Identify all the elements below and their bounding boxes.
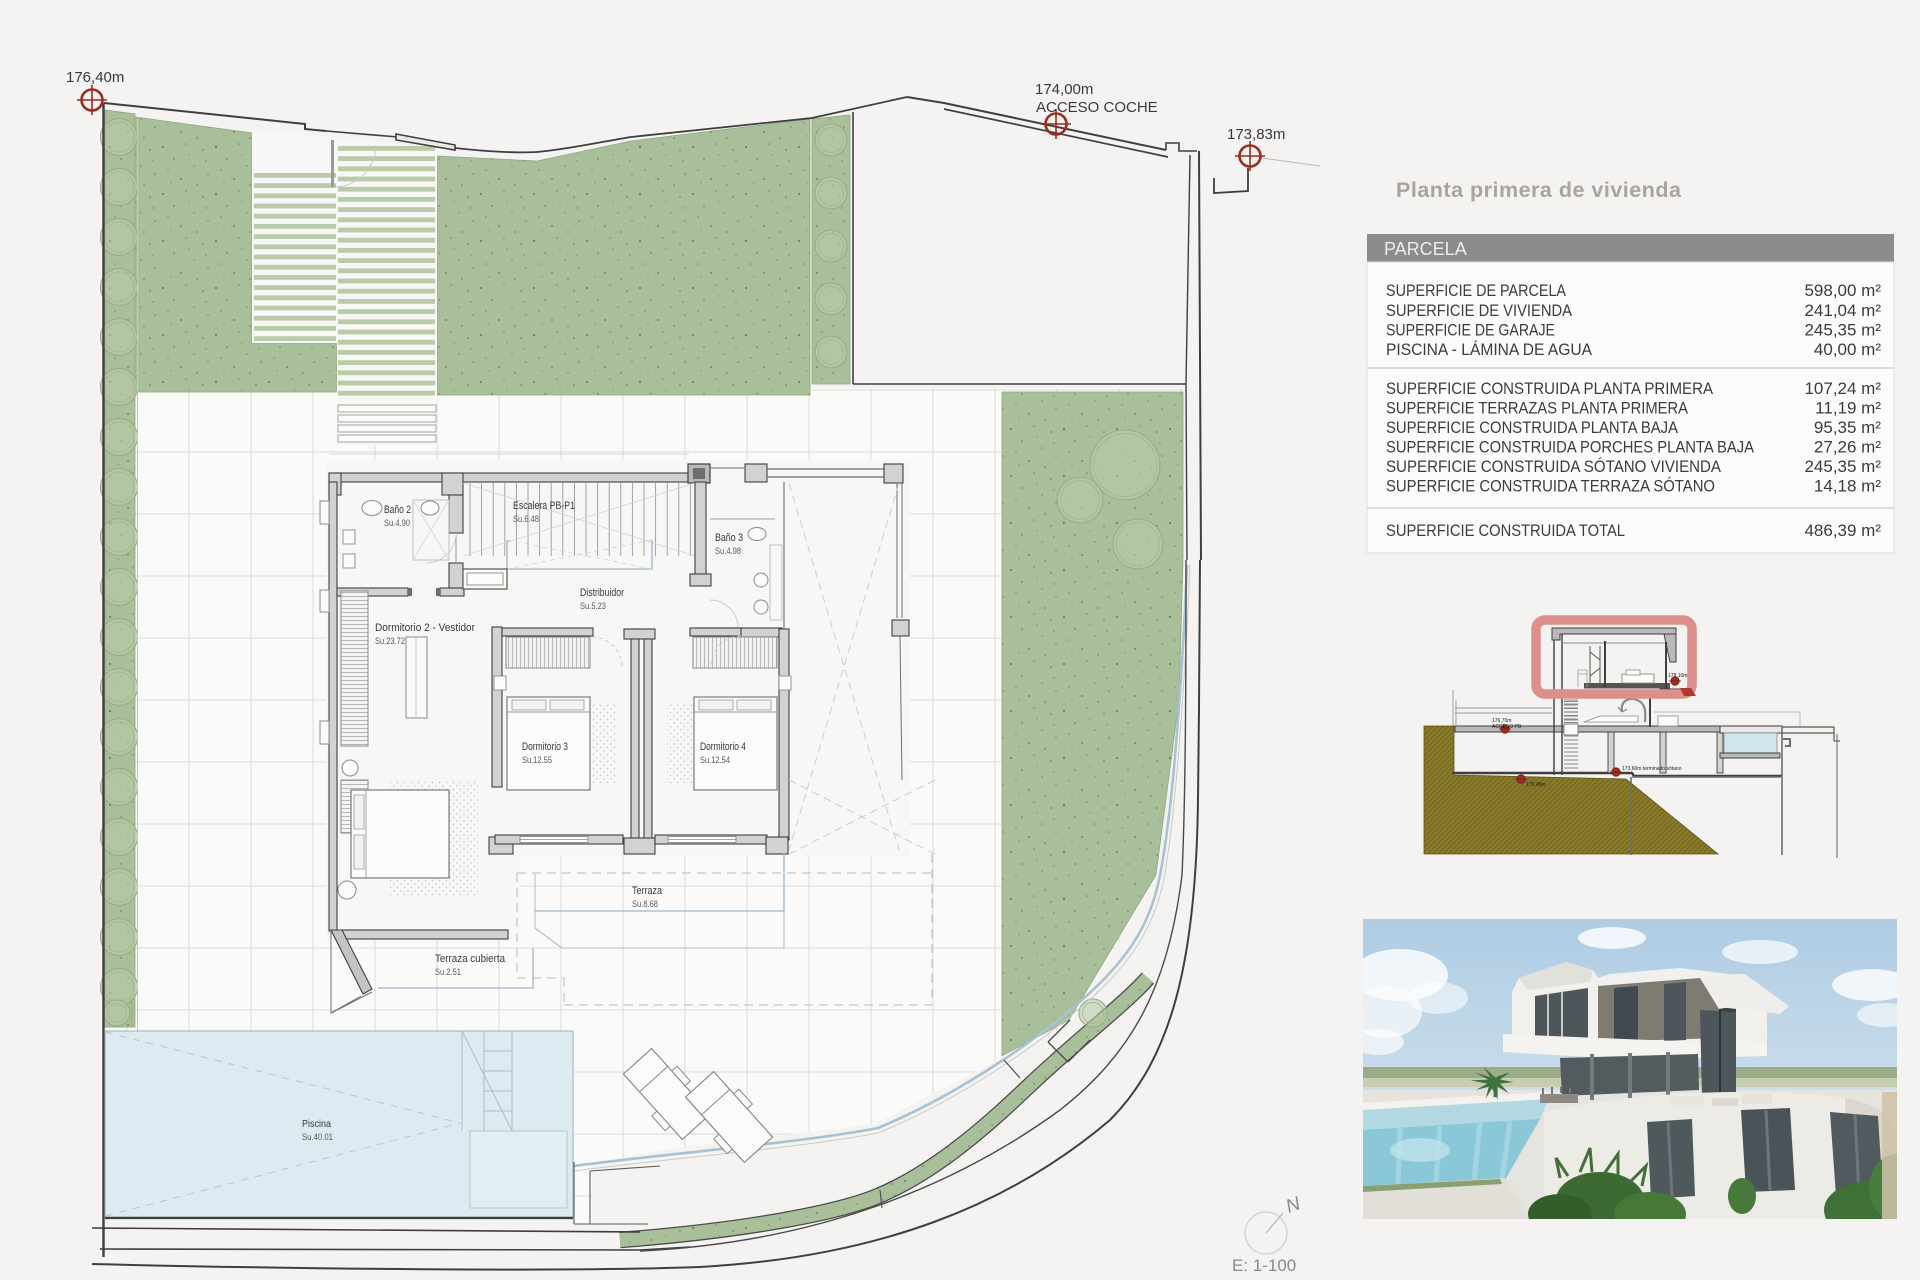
svg-text:Piscina: Piscina	[302, 1118, 331, 1130]
svg-text:Baño 2: Baño 2	[384, 504, 411, 516]
svg-text:Su.5.23: Su.5.23	[580, 601, 606, 612]
svg-text:Planta primera de vivienda: Planta primera de vivienda	[1396, 178, 1682, 202]
svg-text:SUPERFICIE CONSTRUIDA SÓTANO V: SUPERFICIE CONSTRUIDA SÓTANO VIVIENDA	[1386, 457, 1722, 476]
svg-text:Su.2.51: Su.2.51	[435, 967, 461, 978]
svg-text:Su.4.90: Su.4.90	[384, 518, 410, 529]
svg-text:14,18 m²: 14,18 m²	[1814, 477, 1881, 496]
svg-text:PISCINA - LÁMINA DE AGUA: PISCINA - LÁMINA DE AGUA	[1386, 340, 1593, 359]
svg-text:SUPERFICIE CONSTRUIDA TOTAL: SUPERFICIE CONSTRUIDA TOTAL	[1386, 521, 1625, 540]
svg-text:SUPERFICIE CONSTRUIDA TERRAZA: SUPERFICIE CONSTRUIDA TERRAZA SÓTANO	[1386, 477, 1715, 496]
svg-text:Terraza cubierta: Terraza cubierta	[435, 953, 506, 965]
svg-text:11,19 m²: 11,19 m²	[1815, 399, 1881, 418]
svg-text:Su.4.98: Su.4.98	[715, 546, 741, 557]
svg-text:SUPERFICIE CONSTRUIDA PORCHES: SUPERFICIE CONSTRUIDA PORCHES PLANTA BAJ…	[1386, 438, 1755, 457]
svg-text:SUPERFICIE TERRAZAS PLANTA PRI: SUPERFICIE TERRAZAS PLANTA PRIMERA	[1386, 399, 1689, 418]
svg-text:Terraza: Terraza	[632, 885, 663, 897]
svg-text:Distribuidor: Distribuidor	[580, 587, 624, 599]
svg-text:173,60m terminado sótano: 173,60m terminado sótano	[1622, 766, 1682, 772]
svg-text:Dormitorio 3: Dormitorio 3	[522, 741, 568, 753]
svg-text:Baño 3: Baño 3	[715, 532, 743, 544]
svg-text:Dormitorio 4: Dormitorio 4	[700, 741, 746, 753]
svg-text:SUPERFICIE DE GARAJE: SUPERFICIE DE GARAJE	[1386, 321, 1555, 340]
svg-text:178,10m: 178,10m	[1668, 673, 1687, 679]
svg-text:Su.8.68: Su.8.68	[632, 899, 658, 910]
svg-text:95,35 m²: 95,35 m²	[1814, 418, 1881, 437]
svg-text:SUPERFICIE DE PARCELA: SUPERFICIE DE PARCELA	[1386, 281, 1567, 300]
svg-text:175,45m: 175,45m	[1526, 782, 1545, 788]
svg-text:SUPERFICIE DE VIVIENDA: SUPERFICIE DE VIVIENDA	[1386, 301, 1573, 320]
svg-text:176,40m: 176,40m	[66, 69, 124, 86]
svg-text:174,00m: 174,00m	[1035, 81, 1093, 98]
svg-text:SUPERFICIE CONSTRUIDA PLANTA P: SUPERFICIE CONSTRUIDA PLANTA PRIMERA	[1386, 379, 1714, 398]
svg-text:486,39 m²: 486,39 m²	[1804, 521, 1881, 540]
svg-text:245,35 m²: 245,35 m²	[1804, 457, 1881, 476]
svg-text:107,24 m²: 107,24 m²	[1804, 379, 1881, 398]
svg-text:40,00 m²: 40,00 m²	[1814, 340, 1881, 359]
svg-text:Su.12.54: Su.12.54	[700, 755, 730, 766]
svg-text:Dormitorio 2 - Vestidor: Dormitorio 2 - Vestidor	[375, 622, 475, 634]
svg-text:241,04 m²: 241,04 m²	[1804, 301, 1881, 320]
svg-text:E: 1-100: E: 1-100	[1232, 1256, 1296, 1275]
svg-text:Escalera PB-P1: Escalera PB-P1	[513, 500, 575, 512]
svg-text:27,26 m²: 27,26 m²	[1814, 438, 1881, 457]
svg-text:SUPERFICIE CONSTRUIDA PLANTA B: SUPERFICIE CONSTRUIDA PLANTA BAJA	[1386, 418, 1679, 437]
svg-text:Su.12.55: Su.12.55	[522, 755, 552, 766]
svg-text:ACCESO PB: ACCESO PB	[1492, 724, 1522, 730]
svg-text:Su.6.48: Su.6.48	[513, 514, 539, 525]
svg-text:PARCELA: PARCELA	[1384, 239, 1467, 259]
svg-text:173,83m: 173,83m	[1227, 126, 1285, 143]
svg-text:Su.40.01: Su.40.01	[302, 1132, 333, 1143]
svg-text:245,35 m²: 245,35 m²	[1804, 321, 1881, 340]
svg-text:ACCESO COCHE: ACCESO COCHE	[1036, 99, 1158, 116]
svg-text:598,00 m²: 598,00 m²	[1804, 281, 1881, 300]
svg-text:Su.23.72: Su.23.72	[375, 636, 405, 647]
